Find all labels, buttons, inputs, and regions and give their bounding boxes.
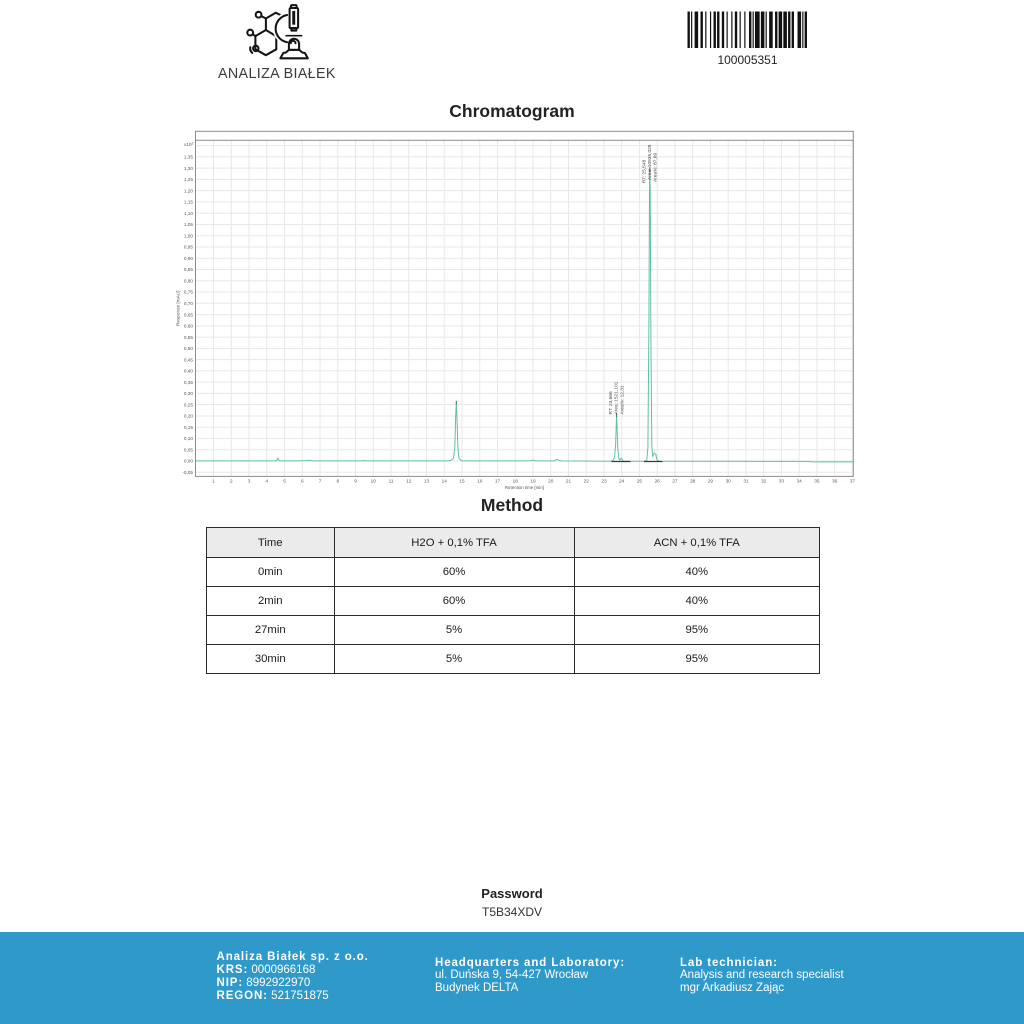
svg-text:0,65: 0,65 — [184, 312, 194, 317]
svg-text:3: 3 — [248, 478, 251, 483]
svg-text:Area: 1521,101: Area: 1521,101 — [614, 381, 620, 414]
svg-text:18: 18 — [513, 478, 519, 483]
svg-text:15: 15 — [459, 478, 465, 483]
svg-text:Area: 10935,029: Area: 10935,029 — [647, 144, 653, 180]
svg-text:12: 12 — [406, 478, 412, 483]
svg-text:0,90: 0,90 — [184, 256, 194, 261]
svg-text:-0,05: -0,05 — [182, 470, 193, 475]
svg-text:0,55: 0,55 — [184, 335, 194, 340]
svg-text:1,30: 1,30 — [184, 166, 194, 171]
svg-text:8: 8 — [336, 478, 339, 483]
svg-text:0,30: 0,30 — [184, 391, 194, 396]
svg-text:1: 1 — [212, 478, 215, 483]
svg-text:0,00: 0,00 — [184, 459, 194, 464]
svg-text:31: 31 — [743, 478, 749, 483]
svg-text:x102: x102 — [184, 141, 194, 147]
svg-text:37: 37 — [850, 478, 856, 483]
svg-text:10: 10 — [371, 478, 377, 483]
svg-text:28: 28 — [690, 478, 696, 483]
svg-text:0,45: 0,45 — [184, 357, 194, 362]
svg-text:RT: 25,548: RT: 25,548 — [641, 160, 647, 183]
svg-text:0,60: 0,60 — [184, 324, 194, 329]
svg-text:1,10: 1,10 — [184, 211, 194, 216]
svg-text:1,15: 1,15 — [184, 200, 194, 205]
svg-text:19: 19 — [530, 478, 536, 483]
svg-text:1,00: 1,00 — [184, 233, 194, 238]
svg-text:27: 27 — [672, 478, 678, 483]
svg-text:35: 35 — [814, 478, 820, 483]
svg-text:Area%: 12,31: Area%: 12,31 — [619, 385, 625, 414]
svg-text:22: 22 — [584, 478, 590, 483]
svg-text:2: 2 — [230, 478, 233, 483]
svg-text:Area%: 87,69: Area%: 87,69 — [653, 153, 659, 182]
svg-text:Response [mAU]: Response [mAU] — [176, 291, 181, 326]
svg-text:0,85: 0,85 — [184, 267, 194, 272]
svg-text:21: 21 — [566, 478, 572, 483]
svg-text:20: 20 — [548, 478, 554, 483]
svg-text:0,35: 0,35 — [184, 380, 194, 385]
svg-text:0,50: 0,50 — [184, 346, 194, 351]
svg-text:7: 7 — [319, 478, 322, 483]
svg-text:25: 25 — [637, 478, 643, 483]
svg-text:29: 29 — [708, 478, 714, 483]
svg-text:11: 11 — [389, 478, 394, 483]
svg-text:1,35: 1,35 — [184, 155, 194, 160]
svg-text:0,10: 0,10 — [184, 436, 194, 441]
svg-text:26: 26 — [655, 478, 661, 483]
svg-text:Retention time [min]: Retention time [min] — [505, 485, 544, 490]
svg-text:4: 4 — [265, 478, 268, 483]
svg-text:30: 30 — [726, 478, 732, 483]
svg-text:0,20: 0,20 — [184, 414, 194, 419]
svg-text:0,95: 0,95 — [184, 245, 194, 250]
svg-text:RT: 23,666: RT: 23,666 — [608, 391, 614, 414]
svg-text:1,25: 1,25 — [184, 177, 194, 182]
svg-text:24: 24 — [619, 478, 625, 483]
svg-text:0,40: 0,40 — [184, 369, 194, 374]
svg-text:13: 13 — [424, 478, 430, 483]
svg-text:36: 36 — [832, 478, 838, 483]
svg-text:17: 17 — [495, 478, 501, 483]
svg-text:6: 6 — [301, 478, 304, 483]
svg-text:34: 34 — [797, 478, 803, 483]
svg-text:16: 16 — [477, 478, 483, 483]
svg-text:1,20: 1,20 — [184, 188, 194, 193]
svg-text:33: 33 — [779, 478, 785, 483]
svg-text:9: 9 — [354, 478, 357, 483]
svg-text:0,70: 0,70 — [184, 301, 194, 306]
svg-text:32: 32 — [761, 478, 767, 483]
svg-text:14: 14 — [442, 478, 448, 483]
svg-text:0,05: 0,05 — [184, 447, 194, 452]
svg-text:0,80: 0,80 — [184, 278, 194, 283]
svg-text:1,05: 1,05 — [184, 222, 194, 227]
svg-text:0,75: 0,75 — [184, 290, 194, 295]
svg-text:0,25: 0,25 — [184, 402, 194, 407]
svg-text:23: 23 — [601, 478, 607, 483]
svg-text:5: 5 — [283, 478, 286, 483]
svg-text:0,15: 0,15 — [184, 425, 194, 430]
